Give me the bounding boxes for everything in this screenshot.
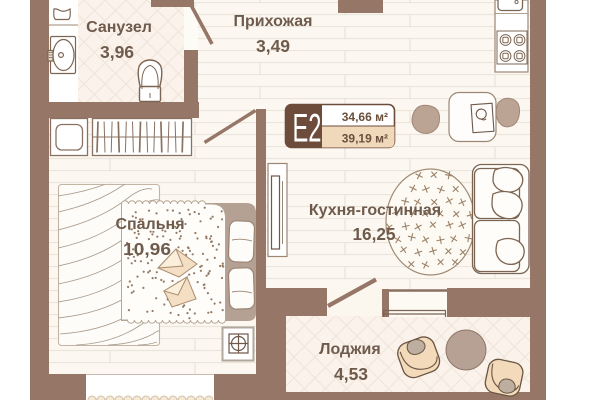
svg-text:4,53: 4,53 — [334, 364, 368, 384]
svg-text:34,66 м²: 34,66 м² — [342, 110, 388, 124]
svg-text:16,25: 16,25 — [353, 224, 396, 244]
svg-text:Прихожая: Прихожая — [234, 13, 313, 30]
svg-text:Лоджия: Лоджия — [319, 341, 380, 358]
svg-text:3,49: 3,49 — [256, 36, 290, 56]
svg-text:Санузел: Санузел — [86, 19, 152, 36]
svg-text:39,19 м²: 39,19 м² — [342, 132, 388, 146]
svg-text:10,96: 10,96 — [123, 239, 171, 259]
svg-text:Кухня-гостинная: Кухня-гостинная — [309, 202, 441, 219]
svg-text:Спальня: Спальня — [115, 216, 184, 233]
svg-text:E2: E2 — [293, 107, 322, 151]
svg-text:3,96: 3,96 — [100, 42, 134, 62]
